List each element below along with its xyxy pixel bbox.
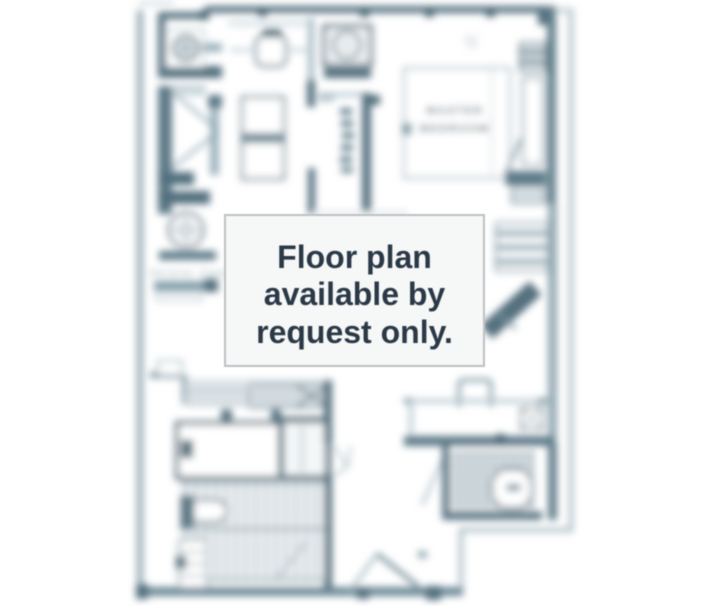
svg-text:W/D: W/D xyxy=(319,95,335,104)
svg-text:7-6: 7-6 xyxy=(466,43,476,50)
svg-text:Selene Cwm: Selene Cwm xyxy=(150,268,226,278)
svg-text:BEDROOM: BEDROOM xyxy=(420,123,490,135)
svg-text:MASTER: MASTER xyxy=(426,105,483,117)
svg-text:10-2: 10-2 xyxy=(464,36,478,43)
